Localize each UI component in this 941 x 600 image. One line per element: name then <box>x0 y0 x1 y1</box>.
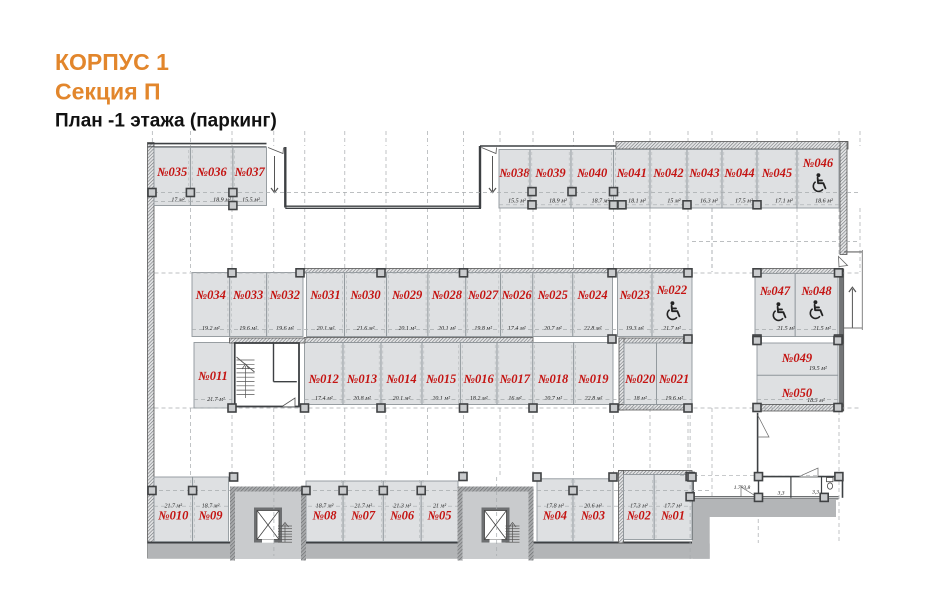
svg-text:21.5 м²: 21.5 м² <box>813 326 831 332</box>
svg-text:№012: №012 <box>309 372 339 386</box>
svg-text:№049: №049 <box>782 351 813 365</box>
svg-text:20.8 м²: 20.8 м² <box>353 396 371 402</box>
svg-text:19.6 м²: 19.6 м² <box>239 326 257 332</box>
svg-text:№037: №037 <box>235 165 266 179</box>
svg-text:20.1 м²: 20.1 м² <box>432 396 450 402</box>
svg-text:№031: №031 <box>310 288 340 302</box>
svg-text:№034: №034 <box>196 288 226 302</box>
svg-text:20.7 м²: 20.7 м² <box>544 326 562 332</box>
svg-text:16 м²: 16 м² <box>508 396 521 402</box>
svg-text:№044: №044 <box>724 166 754 180</box>
svg-text:16.3 м²: 16.3 м² <box>700 199 718 205</box>
svg-text:№019: №019 <box>578 372 609 386</box>
svg-text:№015: №015 <box>426 372 456 386</box>
svg-text:18.6 м²: 18.6 м² <box>815 199 833 205</box>
svg-text:№045: №045 <box>762 166 792 180</box>
svg-text:№026: №026 <box>502 288 533 302</box>
svg-text:15.5 м²: 15.5 м² <box>242 198 260 204</box>
svg-text:№01: №01 <box>661 509 685 523</box>
svg-text:№08: №08 <box>313 509 338 523</box>
svg-text:21.6 м²: 21.6 м² <box>357 326 375 332</box>
svg-text:№02: №02 <box>627 509 651 523</box>
svg-text:№021: №021 <box>659 372 689 386</box>
svg-text:№047: №047 <box>760 284 791 298</box>
svg-text:15 м²: 15 м² <box>667 199 680 205</box>
svg-text:20.7 м²: 20.7 м² <box>544 396 562 402</box>
svg-text:КОРПУС 1: КОРПУС 1 <box>55 49 169 75</box>
svg-text:17.5 м²: 17.5 м² <box>735 199 753 205</box>
svg-text:18.3 м²: 18.3 м² <box>807 398 825 404</box>
svg-text:№03: №03 <box>581 509 605 523</box>
svg-text:№030: №030 <box>350 288 381 302</box>
svg-text:15.5 м²: 15.5 м² <box>508 199 526 205</box>
svg-text:№036: №036 <box>197 165 228 179</box>
svg-text:21.7 м²: 21.7 м² <box>207 397 225 403</box>
svg-text:№024: №024 <box>577 288 607 302</box>
svg-text:№07: №07 <box>351 509 376 523</box>
svg-text:№06: №06 <box>390 509 415 523</box>
svg-text:17.1 м²: 17.1 м² <box>775 199 793 205</box>
svg-text:18 м²: 18 м² <box>634 396 647 402</box>
svg-text:№010: №010 <box>158 509 189 523</box>
svg-text:Секция П: Секция П <box>55 79 161 105</box>
svg-text:№041: №041 <box>617 166 647 180</box>
svg-text:№04: №04 <box>543 509 567 523</box>
svg-text:№042: №042 <box>653 166 683 180</box>
svg-text:19.6 м²: 19.6 м² <box>276 326 294 332</box>
svg-text:№035: №035 <box>157 165 187 179</box>
svg-text:21.5 м²: 21.5 м² <box>777 326 795 332</box>
svg-text:№020: №020 <box>625 372 656 386</box>
svg-text:№039: №039 <box>535 166 566 180</box>
svg-text:19.6 м²: 19.6 м² <box>665 396 683 402</box>
svg-text:19.5 м²: 19.5 м² <box>809 366 827 372</box>
svg-text:18.2 м²: 18.2 м² <box>470 396 488 402</box>
svg-text:№048: №048 <box>801 284 832 298</box>
svg-text:№040: №040 <box>577 166 608 180</box>
svg-text:№022: №022 <box>657 283 687 297</box>
svg-text:№017: №017 <box>500 372 531 386</box>
svg-text:№032: №032 <box>270 288 300 302</box>
svg-text:19.3 м²: 19.3 м² <box>626 326 644 332</box>
svg-text:№033: №033 <box>233 288 263 302</box>
svg-text:17.4 м²: 17.4 м² <box>315 395 333 402</box>
svg-text:№05: №05 <box>428 509 452 523</box>
svg-text:18.9 м²: 18.9 м² <box>549 199 567 205</box>
svg-text:№029: №029 <box>392 288 423 302</box>
svg-text:№043: №043 <box>689 166 719 180</box>
svg-text:№028: №028 <box>432 288 463 302</box>
svg-text:3,3: 3,3 <box>811 490 819 496</box>
svg-text:№014: №014 <box>386 372 416 386</box>
svg-text:20.1 м²: 20.1 м² <box>317 326 335 332</box>
svg-text:20.1 м²: 20.1 м² <box>438 326 456 332</box>
svg-text:№09: №09 <box>199 509 224 523</box>
svg-text:19.2 м²: 19.2 м² <box>202 326 220 332</box>
svg-text:№018: №018 <box>538 372 569 386</box>
svg-text:20.1 м²: 20.1 м² <box>398 326 416 332</box>
svg-text:3,3: 3,3 <box>777 491 785 497</box>
svg-text:№025: №025 <box>538 288 568 302</box>
svg-text:План -1 этажа (паркинг): План -1 этажа (паркинг) <box>55 111 277 132</box>
svg-text:19.8 м²: 19.8 м² <box>474 326 492 332</box>
svg-text:№013: №013 <box>347 372 377 386</box>
svg-text:17 м²: 17 м² <box>171 198 184 204</box>
svg-text:22.8 м²: 22.8 м² <box>585 396 603 402</box>
svg-text:22.8 м²: 22.8 м² <box>584 326 602 332</box>
svg-text:№038: №038 <box>499 166 530 180</box>
svg-text:№046: №046 <box>803 156 834 170</box>
svg-text:21.7 м²: 21.7 м² <box>663 326 681 332</box>
svg-text:№027: №027 <box>468 288 499 302</box>
svg-text:20.1 м²: 20.1 м² <box>393 396 411 402</box>
svg-text:№011: №011 <box>198 369 228 383</box>
svg-text:№016: №016 <box>464 372 495 386</box>
svg-text:№023: №023 <box>620 288 650 302</box>
svg-text:17.4 м²: 17.4 м² <box>508 325 526 332</box>
svg-text:18.1 м²: 18.1 м² <box>628 199 646 205</box>
svg-text:18.7 м²: 18.7 м² <box>592 199 610 205</box>
